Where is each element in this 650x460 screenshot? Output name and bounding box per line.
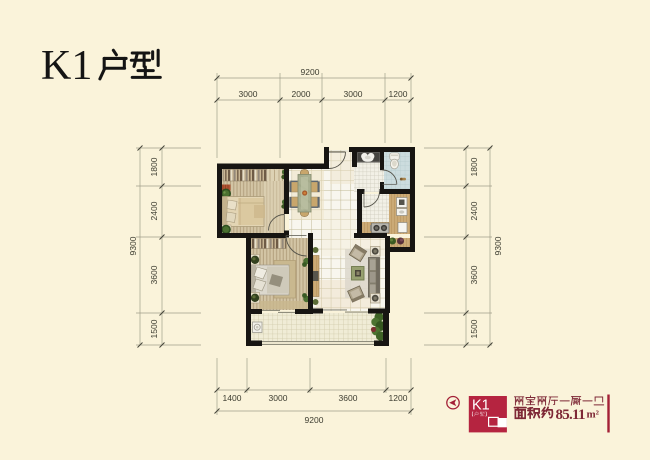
- svg-text:1800: 1800: [469, 157, 479, 176]
- svg-text:9300: 9300: [493, 236, 503, 255]
- svg-text:3600: 3600: [149, 265, 159, 284]
- svg-text:85.11: 85.11: [556, 407, 586, 423]
- svg-text:9300: 9300: [128, 236, 138, 255]
- svg-text:m²: m²: [587, 409, 600, 421]
- svg-text:9200: 9200: [305, 415, 324, 425]
- svg-text:1400: 1400: [223, 393, 242, 403]
- svg-text:2400: 2400: [469, 201, 479, 220]
- svg-text:1500: 1500: [149, 319, 159, 338]
- svg-text:3600: 3600: [339, 393, 358, 403]
- svg-text:1200: 1200: [389, 89, 408, 99]
- svg-text:2000: 2000: [292, 89, 311, 99]
- svg-text:9200: 9200: [301, 67, 320, 77]
- svg-text:K1: K1: [472, 398, 490, 414]
- svg-text:1500: 1500: [469, 319, 479, 338]
- svg-text:3000: 3000: [239, 89, 258, 99]
- svg-text:2400: 2400: [149, 201, 159, 220]
- svg-text:3000: 3000: [344, 89, 363, 99]
- svg-text:3600: 3600: [469, 265, 479, 284]
- svg-text:1200: 1200: [389, 393, 408, 403]
- svg-text:K1: K1: [41, 43, 92, 89]
- svg-text:1800: 1800: [149, 157, 159, 176]
- svg-text:3000: 3000: [269, 393, 288, 403]
